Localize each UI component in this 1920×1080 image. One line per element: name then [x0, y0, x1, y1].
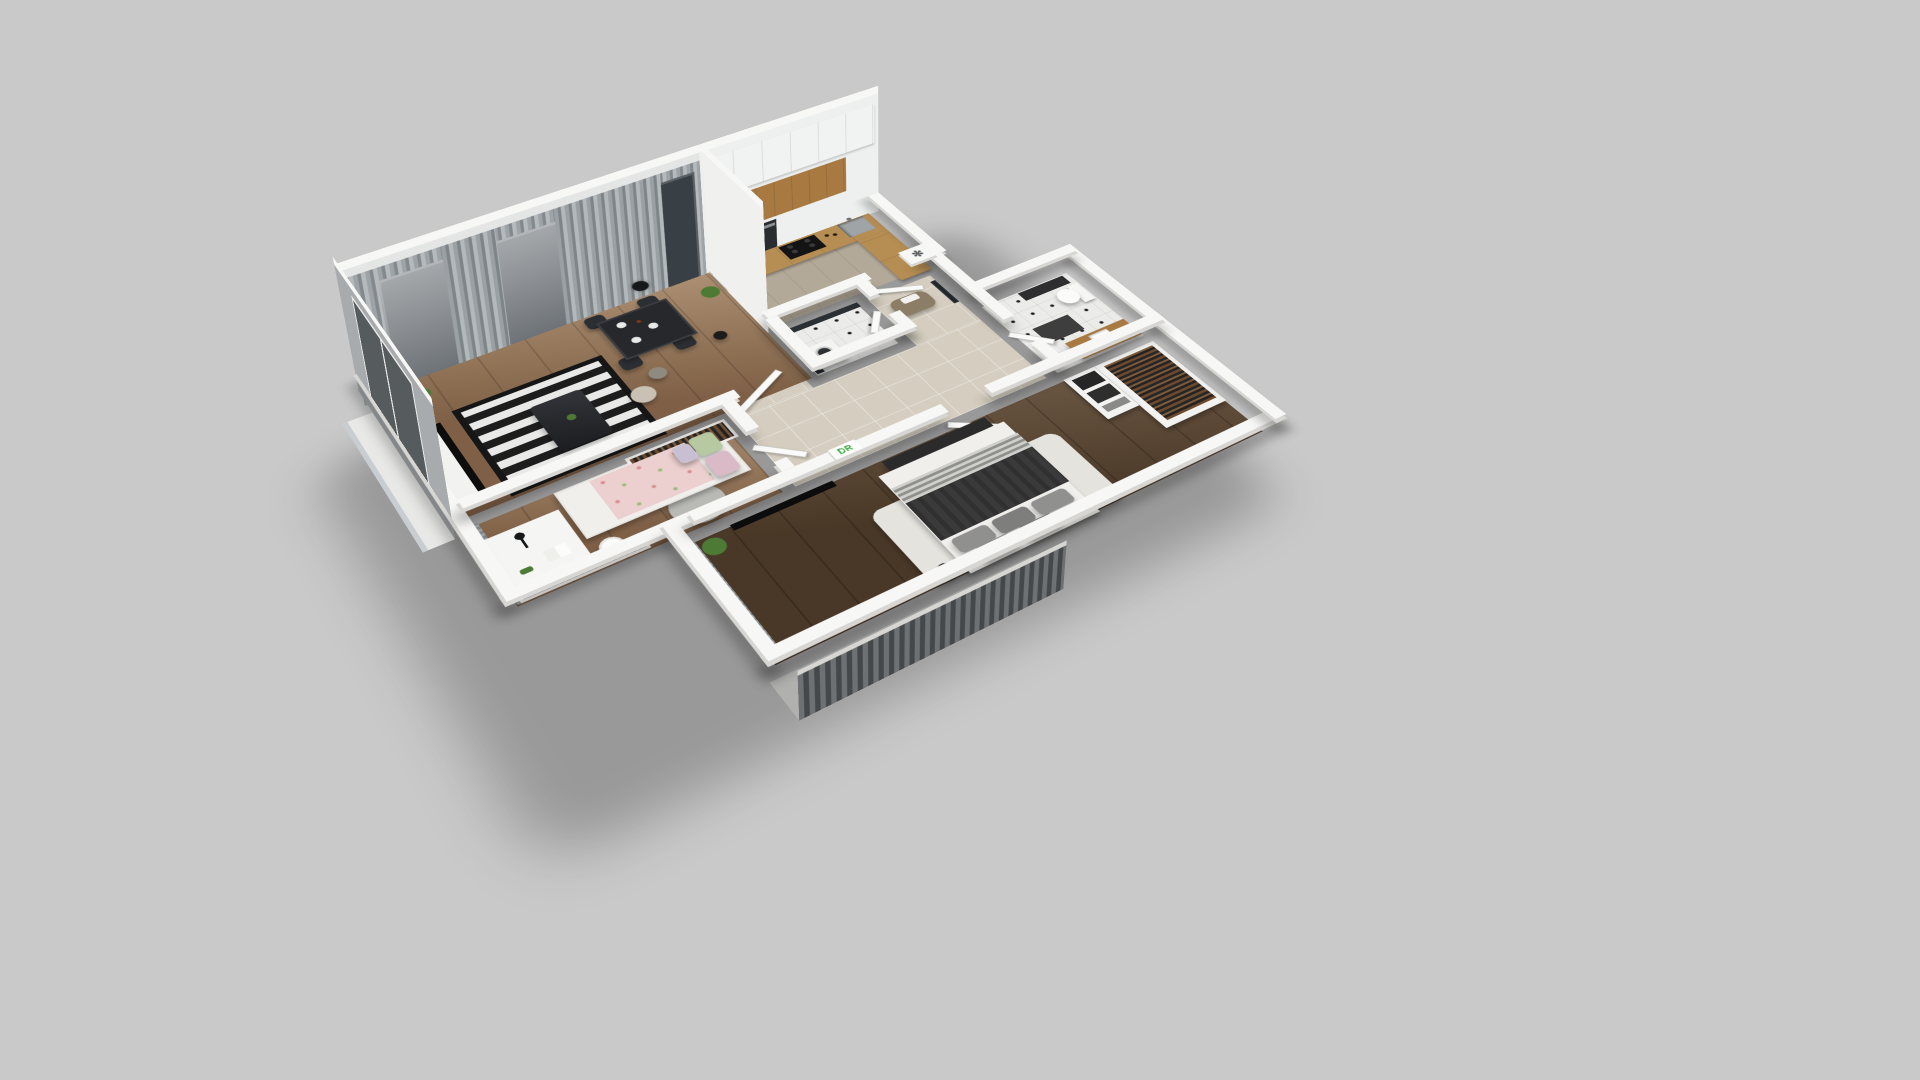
floor-plan-render: ✻ DR — [0, 0, 1920, 1080]
apartment-plan: ✻ DR — [309, 159, 1343, 856]
